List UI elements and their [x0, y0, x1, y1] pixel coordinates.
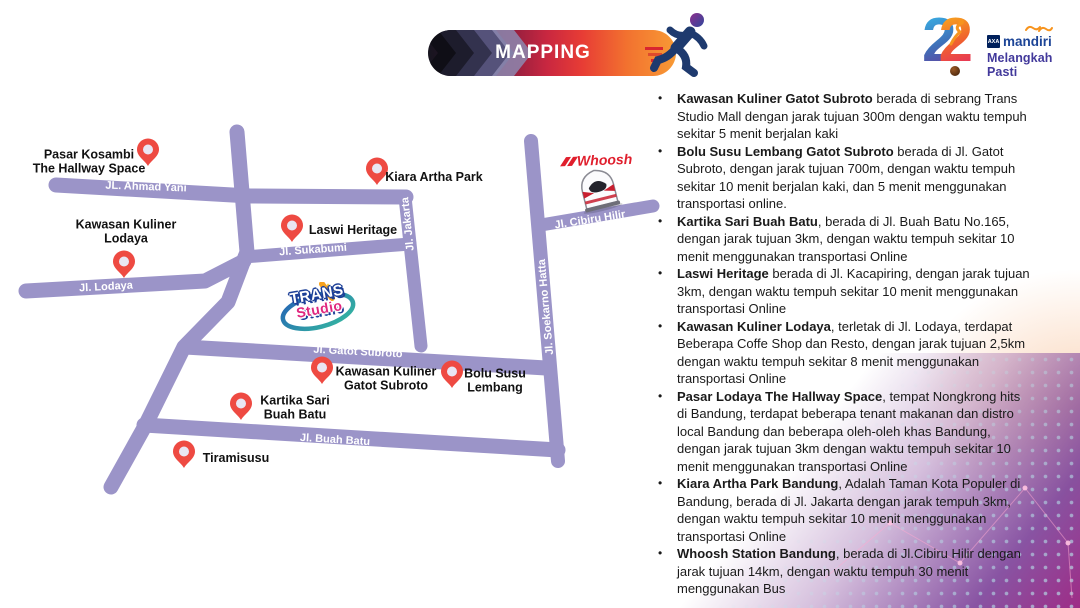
place-name: Kartika Sari Buah Batu	[677, 214, 818, 229]
brand-runner-icon	[946, 18, 968, 52]
brand-lockup: AXA mandiri Melangkah Pasti	[987, 27, 1079, 79]
description-panel: • Kawasan Kuliner Gatot Subroto berada d…	[655, 90, 1033, 598]
panel-item: • Kartika Sari Buah Batu, berada di Jl. …	[655, 213, 1033, 266]
title-banner: MAPPING	[428, 30, 676, 76]
bullet: •	[655, 265, 677, 318]
panel-item: • Laswi Heritage berada di Jl. Kacapirin…	[655, 265, 1033, 318]
brand-22-mark: 2 2	[922, 10, 973, 72]
bullet: •	[655, 545, 677, 598]
place-label-kawasan-lodaya: Kawasan Kuliner Lodaya	[76, 218, 177, 247]
place-label-kiara-artha: Kiara Artha Park	[385, 170, 483, 184]
axa-logo: AXA	[987, 35, 1000, 48]
panel-item: • Pasar Lodaya The Hallway Space, tempat…	[655, 388, 1033, 476]
place-name: Laswi Heritage	[677, 266, 769, 281]
bullet: •	[655, 90, 677, 143]
map-pin-tiramisusu	[173, 441, 195, 469]
panel-item: • Kiara Artha Park Bandung, Adalah Taman…	[655, 475, 1033, 545]
mandiri-wordmark: mandiri	[1003, 34, 1052, 49]
brand-waves-icon	[1025, 23, 1053, 33]
place-name: Whoosh Station Bandung	[677, 546, 836, 561]
runner-icon	[645, 10, 717, 82]
place-label-pasar-kosambi: Pasar Kosambi The Hallway Space	[33, 148, 146, 177]
slide: JL. Ahmad Yani Jl. Lodaya Jl. Sukabumi J…	[0, 0, 1080, 608]
bullet: •	[655, 388, 677, 476]
map-pin-kawasan-kuliner-gatot-subroto	[311, 357, 333, 385]
page-title: MAPPING	[428, 30, 667, 76]
brand-tagline: Melangkah Pasti	[987, 51, 1079, 79]
place-name: Kawasan Kuliner Lodaya	[677, 319, 831, 334]
place-label-kartika-sari: Kartika Sari Buah Batu	[260, 394, 329, 423]
map-pin-kawasan-kuliner-lodaya	[113, 251, 135, 279]
place-label-kawasan-gatot: Kawasan Kuliner Gatot Subroto	[336, 365, 437, 394]
panel-item: • Kawasan Kuliner Lodaya, terletak di Jl…	[655, 318, 1033, 388]
panel-item: • Kawasan Kuliner Gatot Subroto berada d…	[655, 90, 1033, 143]
place-name: Kiara Artha Park Bandung	[677, 476, 838, 491]
trans-studio-logo: TRANS Studio	[278, 282, 358, 336]
place-name: Bolu Susu Lembang Gatot Subroto	[677, 144, 894, 159]
place-name: Pasar Lodaya The Hallway Space	[677, 389, 882, 404]
bullet: •	[655, 318, 677, 388]
brand-ball-icon	[950, 66, 960, 76]
map-pin-bolu-susu-lembang	[441, 361, 463, 389]
panel-item: • Bolu Susu Lembang Gatot Subroto berada…	[655, 143, 1033, 213]
bullet: •	[655, 213, 677, 266]
bullet: •	[655, 475, 677, 545]
place-label-tiramisusu: Tiramisusu	[203, 451, 269, 465]
panel-item: • Whoosh Station Bandung, berada di Jl.C…	[655, 545, 1033, 598]
bullet: •	[655, 143, 677, 213]
place-label-bolu-susu: Bolu Susu Lembang	[464, 367, 526, 396]
map-pin-kartika-sari	[230, 393, 252, 421]
place-name: Kawasan Kuliner Gatot Subroto	[677, 91, 873, 106]
map-pin-laswi-heritage	[281, 215, 303, 243]
map	[0, 0, 660, 560]
road-jl-lodaya	[26, 261, 244, 291]
place-label-laswi-heritage: Laswi Heritage	[309, 223, 397, 237]
